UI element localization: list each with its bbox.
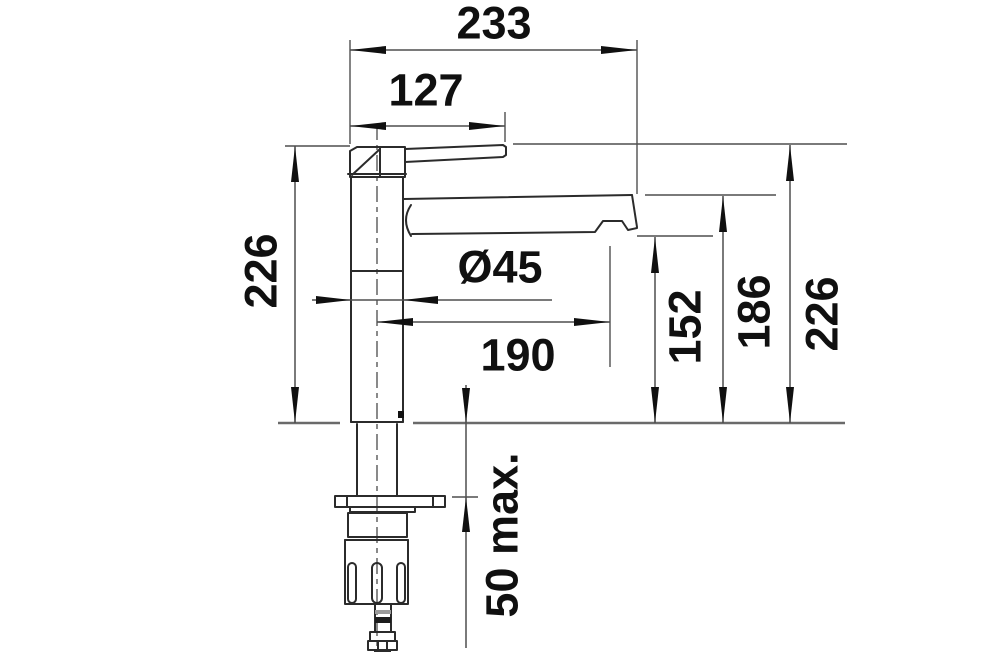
- dim-label-height-left: 226: [239, 233, 284, 308]
- dim-label-spout-top-height: 186: [732, 274, 777, 349]
- dim-label-reach: 190: [480, 333, 555, 378]
- extension-lines: [285, 40, 847, 497]
- dim-label-handle-length: 127: [388, 68, 463, 113]
- dim-label-overall-height: 226: [800, 276, 845, 351]
- dim-label-overall-projection: 233: [456, 1, 531, 46]
- technical-drawing-canvas: 233 127 226 Ø45 190 152 186 226 50 max.: [0, 0, 992, 652]
- clamp-plate: [335, 496, 445, 512]
- spout-shoulder-arc: [406, 205, 411, 236]
- supply-stud: [368, 604, 397, 652]
- dim-label-diameter: Ø45: [457, 245, 542, 290]
- spout: [404, 195, 637, 236]
- handle-lever: [405, 145, 506, 162]
- dim-label-spout-underside-height: 152: [663, 289, 708, 364]
- dim-label-deck-max-thickness: 50 max.: [480, 452, 525, 617]
